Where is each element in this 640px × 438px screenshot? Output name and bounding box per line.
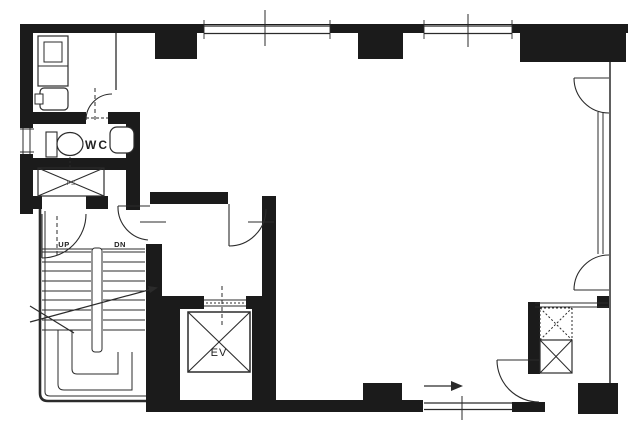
pipe-shaft: PS [38,168,104,196]
entry-arrowhead [451,381,463,391]
floor-plan: WC PS UP DN [0,0,640,438]
up-label: UP [58,240,69,249]
wash-basin [110,127,134,153]
window-left [20,128,34,154]
bottom-wall-right-segment [512,402,545,412]
shaft-hall-wall-left [20,196,42,209]
top-column-1 [155,33,197,59]
entry-arrow [424,381,463,391]
sink-tap [35,94,43,104]
window-top-2 [424,14,512,47]
dn-label: DN [114,240,126,249]
stair-hall-door [42,214,86,258]
right-shaft-left-wall [528,302,540,374]
floor-plan-drawing: WC PS UP DN [0,0,640,438]
right-top-door [574,78,609,113]
top-column-2 [358,33,403,59]
window-bottom [424,396,512,420]
stair-treads-down [103,252,145,330]
corridor-wall [150,192,228,204]
ev-label: EV [211,347,228,359]
bottom-right-corner-column [578,383,618,414]
left-wall [20,24,33,214]
window-top-1 [204,10,330,46]
elevator-top-stub-right [246,296,252,309]
windows [20,10,608,420]
utility-room [35,36,68,110]
elevator-top-stub-left [180,296,204,309]
sink [40,88,68,110]
elevator-left-wall [150,296,180,412]
toilet-bowl [57,133,83,156]
walls [20,24,628,414]
right-bottom-door [574,255,609,290]
glass-wall-right [598,112,603,254]
right-shaft-dotted-box [540,308,572,340]
wc-top-wall-left [33,112,86,124]
counter-inner-square [44,42,62,62]
right-shaft [540,308,572,373]
staircase: UP DN [30,240,158,390]
ps-label: PS [67,180,76,187]
toilet-tank [46,132,57,157]
wc-label: WC [85,138,109,152]
top-right-corner-block [520,24,626,62]
stair-center-divider [92,248,102,352]
bottom-column [363,383,402,402]
shaft-hall-wall-right [86,196,108,209]
elevator-right-wall [252,296,276,412]
glass-wall-bottom-stub [597,296,609,308]
passage-door [118,206,166,240]
